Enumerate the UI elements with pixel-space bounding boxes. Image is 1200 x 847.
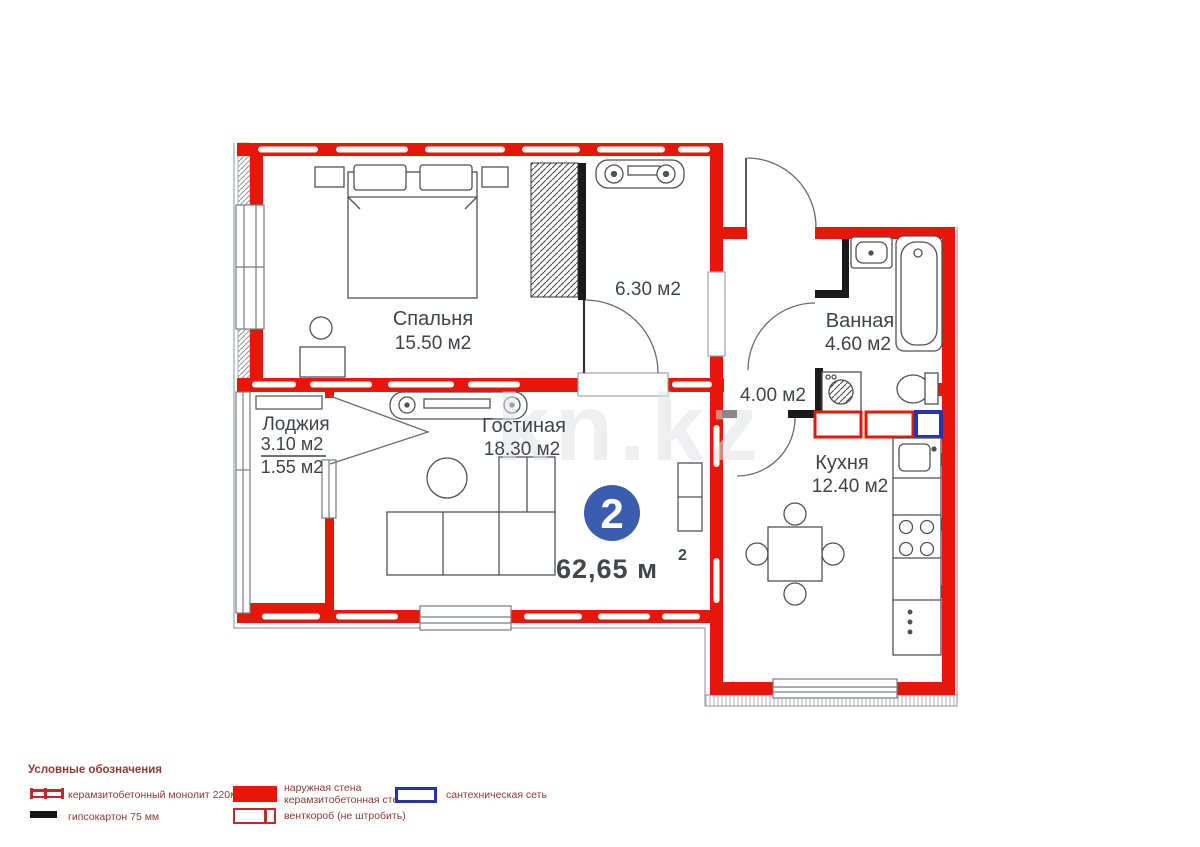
pillow: [354, 165, 406, 190]
drywall-icon: [30, 811, 57, 818]
total-area-sup: 2: [678, 547, 687, 564]
chair: [784, 583, 806, 605]
vent-box: [815, 412, 861, 437]
chair: [310, 317, 332, 339]
nightstand: [482, 167, 508, 187]
stove-burner: [921, 543, 934, 556]
vent-duct-icon: [233, 808, 276, 824]
legend-title: Условные обозначения: [28, 764, 162, 776]
kitchen-window: [773, 679, 897, 698]
legend-exterior-line1: наружная стена: [284, 783, 410, 795]
loggia-cabinet: [256, 396, 322, 409]
bathroom-door-arc: [748, 303, 815, 370]
bedroom-door-arc: [585, 300, 658, 373]
room-loggia: [256, 396, 322, 409]
living-area: 18.30 м2: [484, 439, 560, 460]
summary: 2 62,65 м 2: [556, 485, 687, 584]
legend-vent-label: венткороб (не штробить): [284, 810, 406, 822]
wall-right: [942, 227, 955, 695]
legend-exterior-label: наружная стена керамзитобетонная стена: [284, 783, 410, 806]
floor-plan-svg: kn.kz Спальня 15.50 м2 6.30 м2 Ванная 4.…: [0, 0, 1200, 760]
desk: [300, 347, 345, 377]
wall-loggia-right: [325, 516, 334, 608]
pillow: [420, 165, 472, 190]
vent-box: [866, 412, 913, 437]
living-window: [420, 606, 511, 630]
entrance-door-arc: [747, 158, 816, 227]
bed: [348, 172, 477, 298]
chair: [784, 503, 806, 525]
kitchen-sink: [899, 444, 930, 471]
corridor-area: 4.00 м2: [740, 385, 806, 406]
loggia-name: Лоджия: [262, 414, 329, 435]
hall-corridor-opening: [708, 272, 725, 356]
loggia-area-counted: 1.55 м2: [261, 457, 323, 477]
bedroom-area: 15.50 м2: [395, 333, 471, 354]
wall-loggia-bottom: [240, 603, 334, 613]
plumbing-network-icon: [395, 787, 437, 803]
shafts: [815, 412, 941, 437]
bathroom-area: 4.60 м2: [825, 334, 891, 355]
stove-burner: [900, 543, 913, 556]
legend-plumbing-label: сантехническая сеть: [446, 789, 547, 801]
legend-drywall-label: гипсокартон 75 мм: [68, 811, 159, 823]
kitchen-name: Кухня: [815, 452, 869, 474]
legend-exterior-line2: керамзитобетонная стена: [284, 795, 410, 807]
stove-burner: [921, 521, 934, 534]
exterior-wall-icon: [233, 786, 277, 802]
bathroom-name: Ванная: [826, 310, 895, 332]
room-hall: [596, 160, 684, 188]
wardrobe: [531, 163, 578, 297]
loggia-area-total: 3.10 м2: [261, 434, 323, 454]
coffee-table: [427, 458, 467, 498]
rooms-badge-number: 2: [600, 490, 623, 537]
floor-plan-image: kn.kz Спальня 15.50 м2 6.30 м2 Ванная 4.…: [0, 0, 1200, 847]
monolith-wall-icon: [30, 788, 64, 799]
nightstand: [315, 167, 344, 187]
wall-wardrobe: [578, 163, 586, 300]
legend: Условные обозначения керамзитобетонный м…: [20, 758, 740, 838]
bedroom-name: Спальня: [393, 308, 473, 330]
stove-burner: [900, 521, 913, 534]
sofa: [387, 512, 555, 575]
living-name: Гостиная: [482, 415, 566, 437]
chair: [822, 543, 844, 565]
dining-table: [768, 527, 822, 581]
legend-monolith-label: керамзитобетонный монолит 220мм: [68, 789, 245, 801]
toilet: [897, 375, 929, 403]
kitchen-area: 12.40 м2: [812, 476, 888, 497]
hall-area: 6.30 м2: [615, 279, 681, 300]
chair: [746, 543, 768, 565]
total-area: 62,65 м: [556, 554, 658, 584]
plumbing-shaft: [916, 412, 941, 437]
